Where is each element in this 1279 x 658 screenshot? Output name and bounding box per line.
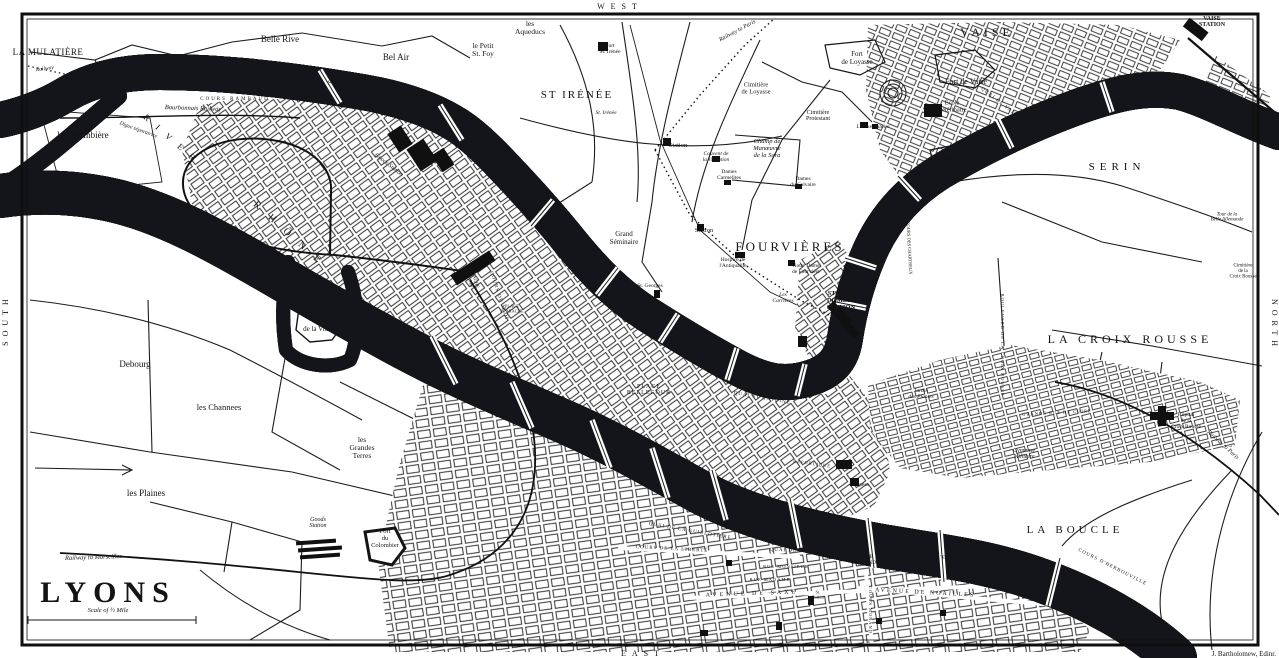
label-opera: Opéra	[855, 482, 869, 488]
label-vaise: VAISE	[960, 25, 1014, 39]
map-scale-note: Scale of ½ Mile	[88, 607, 129, 614]
label-cimitiere-de-loyasse: Cimitièrede Loyasse	[741, 81, 770, 95]
label-les-plaines: les Plaines	[127, 488, 166, 498]
compass-south: SOUTH	[1, 294, 10, 346]
map-attribution: J. Bartholomew, Edinr.	[1212, 650, 1277, 658]
compass-east: EAST	[621, 649, 665, 658]
compass-west: WEST	[597, 2, 643, 11]
label-rue-madame: RUE MADAME	[750, 577, 791, 582]
label-notre-dame-de-fourviere: Notre Damede Fourvière	[792, 263, 821, 275]
label-champ-de-manoeuvre: Champ deManœuvrede la Sara	[752, 138, 781, 159]
label-station-hill: Station	[669, 142, 688, 149]
label-rue-monsieur: RUE MONSIEUR	[763, 564, 809, 569]
label-st-paul-dombes-station: ST PAULDOMBESSTATION	[827, 290, 856, 311]
label-boulevard-croix-rousse: BOULEVARD DE LA CROIX ROUSSE	[1000, 294, 1005, 397]
label-serin: SERIN	[1089, 161, 1146, 173]
map-canvas: { "map": { "title": "LYONS", "scale_note…	[0, 0, 1279, 658]
label-gymnase-militaire: GymnaseMilitaire	[1012, 448, 1035, 460]
label-bel-air: Bel Air	[383, 52, 409, 62]
label-place-morand: PLACEMORAND	[852, 554, 876, 566]
label-la-mulatiere: LA MULATIÈRE	[13, 47, 84, 57]
label-st-irenee-church: St. Irénée	[595, 110, 617, 116]
label-la-boucle: LA BOUCLE	[1027, 524, 1124, 536]
label-goods-station-south: GoodsStation	[309, 517, 326, 529]
label-fort-de-vaise: Fort de Vaise	[945, 77, 988, 86]
label-st-irenee: ST IRÉNÉE	[541, 89, 614, 101]
label-cours-morand: COURS MORAND	[868, 586, 873, 634]
label-les-channees: les Channees	[197, 402, 242, 412]
label-st-georges: St. Georges	[637, 283, 663, 289]
label-cours-rambaud: COURS RAMBAUD	[200, 97, 269, 102]
label-hospice-antiquaille: Hospice del'Antiquaille	[719, 257, 747, 269]
label-fourvieres: FOURVIÈRES	[735, 239, 844, 254]
label-debourg: Debourg	[119, 359, 151, 369]
label-couvent-visitation: Couvent dela Visitation	[703, 151, 730, 163]
map-title: LYONS	[40, 576, 176, 609]
label-cimitiere-protestant: CimitièreProtestant	[806, 110, 830, 122]
lyons-map: LYONS Scale of ½ Mile WEST EAST SOUTH NO…	[0, 0, 1279, 658]
label-observatoire: L'Observatoire	[855, 124, 890, 130]
compass-north: NORTH	[1270, 299, 1279, 351]
label-la-colombiere: la Colombière	[57, 130, 108, 140]
label-la-croix-rousse: LA CROIX ROUSSE	[1048, 332, 1213, 346]
label-station-hill-2: Station	[695, 227, 714, 234]
label-belle-rive: Belle Rive	[261, 34, 299, 44]
label-le-petit-st-foy: le PetitSt. Foy	[472, 41, 494, 58]
